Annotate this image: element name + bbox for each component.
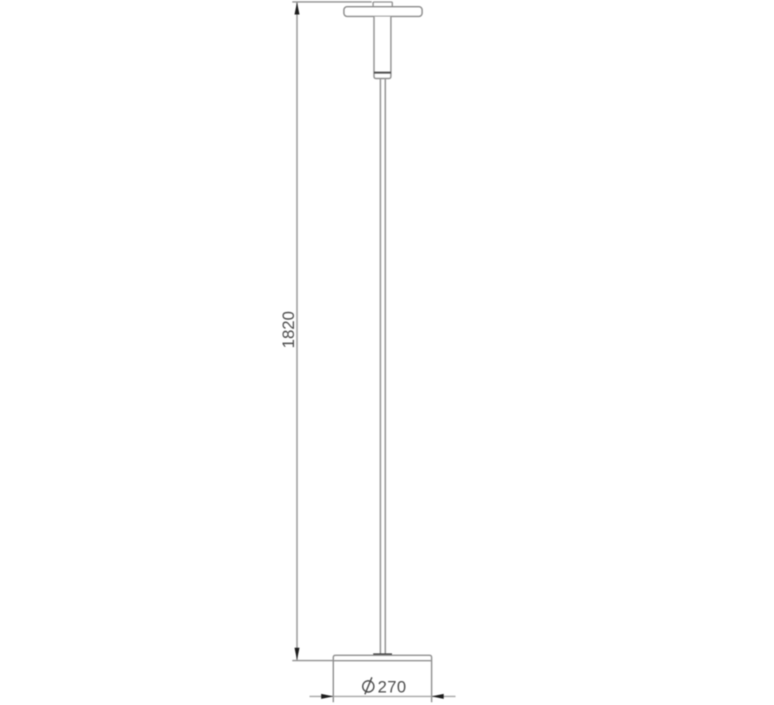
svg-text:1820: 1820	[279, 311, 298, 348]
svg-text:270: 270	[378, 678, 407, 697]
